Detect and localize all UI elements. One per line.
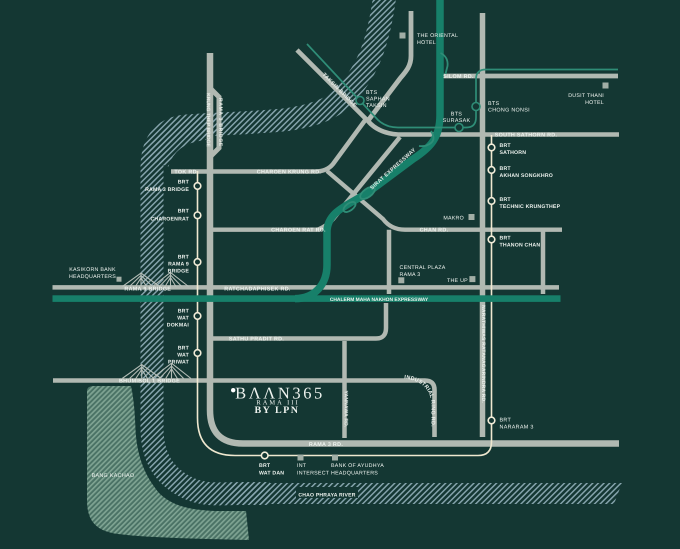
svg-text:KRUNG THEP BRIDGE: KRUNG THEP BRIDGE bbox=[205, 93, 211, 147]
svg-text:CHAROEN RAT RD.: CHAROEN RAT RD. bbox=[271, 228, 326, 234]
svg-text:CENTRAL PLAZA: CENTRAL PLAZA bbox=[400, 265, 446, 271]
svg-text:BRT: BRT bbox=[259, 463, 271, 469]
svg-text:RAMA 3: RAMA 3 bbox=[400, 272, 421, 278]
svg-text:BRT: BRT bbox=[178, 309, 190, 315]
svg-text:RAMA 3 RD.: RAMA 3 RD. bbox=[309, 442, 343, 448]
svg-text:BRT: BRT bbox=[500, 418, 512, 424]
svg-text:MAKRO: MAKRO bbox=[443, 216, 464, 222]
svg-text:CHAROEN KRUNG RD.: CHAROEN KRUNG RD. bbox=[257, 170, 322, 176]
svg-text:CHAN RD.: CHAN RD. bbox=[420, 228, 449, 234]
svg-text:WAT: WAT bbox=[177, 316, 189, 322]
svg-text:BANG KACHAO: BANG KACHAO bbox=[92, 473, 135, 479]
svg-text:BRT: BRT bbox=[500, 166, 512, 172]
svg-text:THANON CHAN: THANON CHAN bbox=[500, 243, 541, 249]
svg-text:HOTEL: HOTEL bbox=[585, 100, 604, 106]
svg-text:DOKMAI: DOKMAI bbox=[167, 323, 190, 329]
svg-text:BRT: BRT bbox=[178, 180, 190, 186]
svg-text:AKHAN SONGKHRO: AKHAN SONGKHRO bbox=[500, 173, 554, 179]
svg-text:BRIDGE: BRIDGE bbox=[168, 269, 190, 275]
svg-text:RAMA 3 BRIDGE: RAMA 3 BRIDGE bbox=[145, 187, 189, 193]
svg-text:RAMA 3 BRIDGE: RAMA 3 BRIDGE bbox=[217, 98, 223, 147]
svg-text:DUSIT THANI: DUSIT THANI bbox=[568, 93, 604, 99]
svg-text:NARATHIWAS RATANAGARINDRA RD.: NARATHIWAS RATANAGARINDRA RD. bbox=[480, 305, 486, 403]
svg-text:BHUMIBOL 1 BRIDGE: BHUMIBOL 1 BRIDGE bbox=[119, 379, 180, 385]
svg-text:BANK OF AYUDHYA: BANK OF AYUDHYA bbox=[331, 463, 384, 469]
svg-text:BRT: BRT bbox=[178, 255, 190, 261]
svg-text:BTS: BTS bbox=[366, 90, 377, 96]
svg-text:CHONG NONSI: CHONG NONSI bbox=[488, 108, 530, 114]
svg-text:THE ORIENTAL: THE ORIENTAL bbox=[417, 33, 458, 39]
svg-text:SAPHAN: SAPHAN bbox=[366, 97, 390, 103]
svg-text:BY LPN: BY LPN bbox=[254, 405, 299, 416]
svg-text:BRT: BRT bbox=[500, 236, 512, 242]
svg-text:KASIKORN BANK: KASIKORN BANK bbox=[69, 267, 116, 273]
svg-text:TAKSIN: TAKSIN bbox=[366, 103, 387, 109]
svg-text:CHAO PHRAYA RIVER: CHAO PHRAYA RIVER bbox=[298, 493, 355, 499]
svg-text:BRT: BRT bbox=[500, 143, 512, 149]
svg-text:INTERSECT: INTERSECT bbox=[297, 471, 330, 477]
svg-text:CHALERM MAHA NAKHON EXPRESSWAY: CHALERM MAHA NAKHON EXPRESSWAY bbox=[330, 297, 429, 303]
svg-text:SATHORN: SATHORN bbox=[500, 150, 527, 156]
svg-text:BRT: BRT bbox=[500, 197, 512, 203]
svg-text:WAT: WAT bbox=[177, 353, 189, 359]
svg-text:HOTEL: HOTEL bbox=[417, 40, 436, 46]
svg-text:NARARAM 3: NARARAM 3 bbox=[500, 425, 534, 431]
svg-text:PRIWAT: PRIWAT bbox=[168, 360, 190, 366]
svg-text:THE UP: THE UP bbox=[447, 278, 468, 284]
svg-text:HEADQUARTERS: HEADQUARTERS bbox=[331, 471, 378, 477]
svg-text:BRT: BRT bbox=[178, 346, 190, 352]
svg-text:BRT: BRT bbox=[178, 209, 190, 215]
svg-text:RATCHADAPHISEK RD.: RATCHADAPHISEK RD. bbox=[224, 287, 291, 293]
svg-text:INT: INT bbox=[297, 463, 307, 469]
svg-text:TECHNIC KRUNGTHEP: TECHNIC KRUNGTHEP bbox=[500, 204, 561, 210]
svg-text:YANNAWA RD.: YANNAWA RD. bbox=[343, 390, 349, 428]
svg-text:WAT DAN: WAT DAN bbox=[259, 471, 284, 477]
svg-text:SOUTH SATHORN RD.: SOUTH SATHORN RD. bbox=[495, 133, 558, 139]
svg-text:RAMA 9 BRIDGE: RAMA 9 BRIDGE bbox=[124, 286, 171, 292]
svg-text:BTS: BTS bbox=[488, 101, 499, 107]
svg-text:SILOM RD.: SILOM RD. bbox=[443, 74, 474, 80]
svg-text:SURASAK: SURASAK bbox=[443, 118, 471, 124]
svg-text:SATHU PRADIT RD.: SATHU PRADIT RD. bbox=[229, 336, 285, 342]
svg-text:BTS: BTS bbox=[451, 112, 462, 118]
svg-text:HEADQUARTERS: HEADQUARTERS bbox=[69, 274, 116, 280]
svg-text:TOK RD.: TOK RD. bbox=[174, 170, 198, 176]
svg-text:CHAROENRAT: CHAROENRAT bbox=[150, 217, 189, 223]
svg-text:RAMA 9: RAMA 9 bbox=[168, 262, 189, 268]
